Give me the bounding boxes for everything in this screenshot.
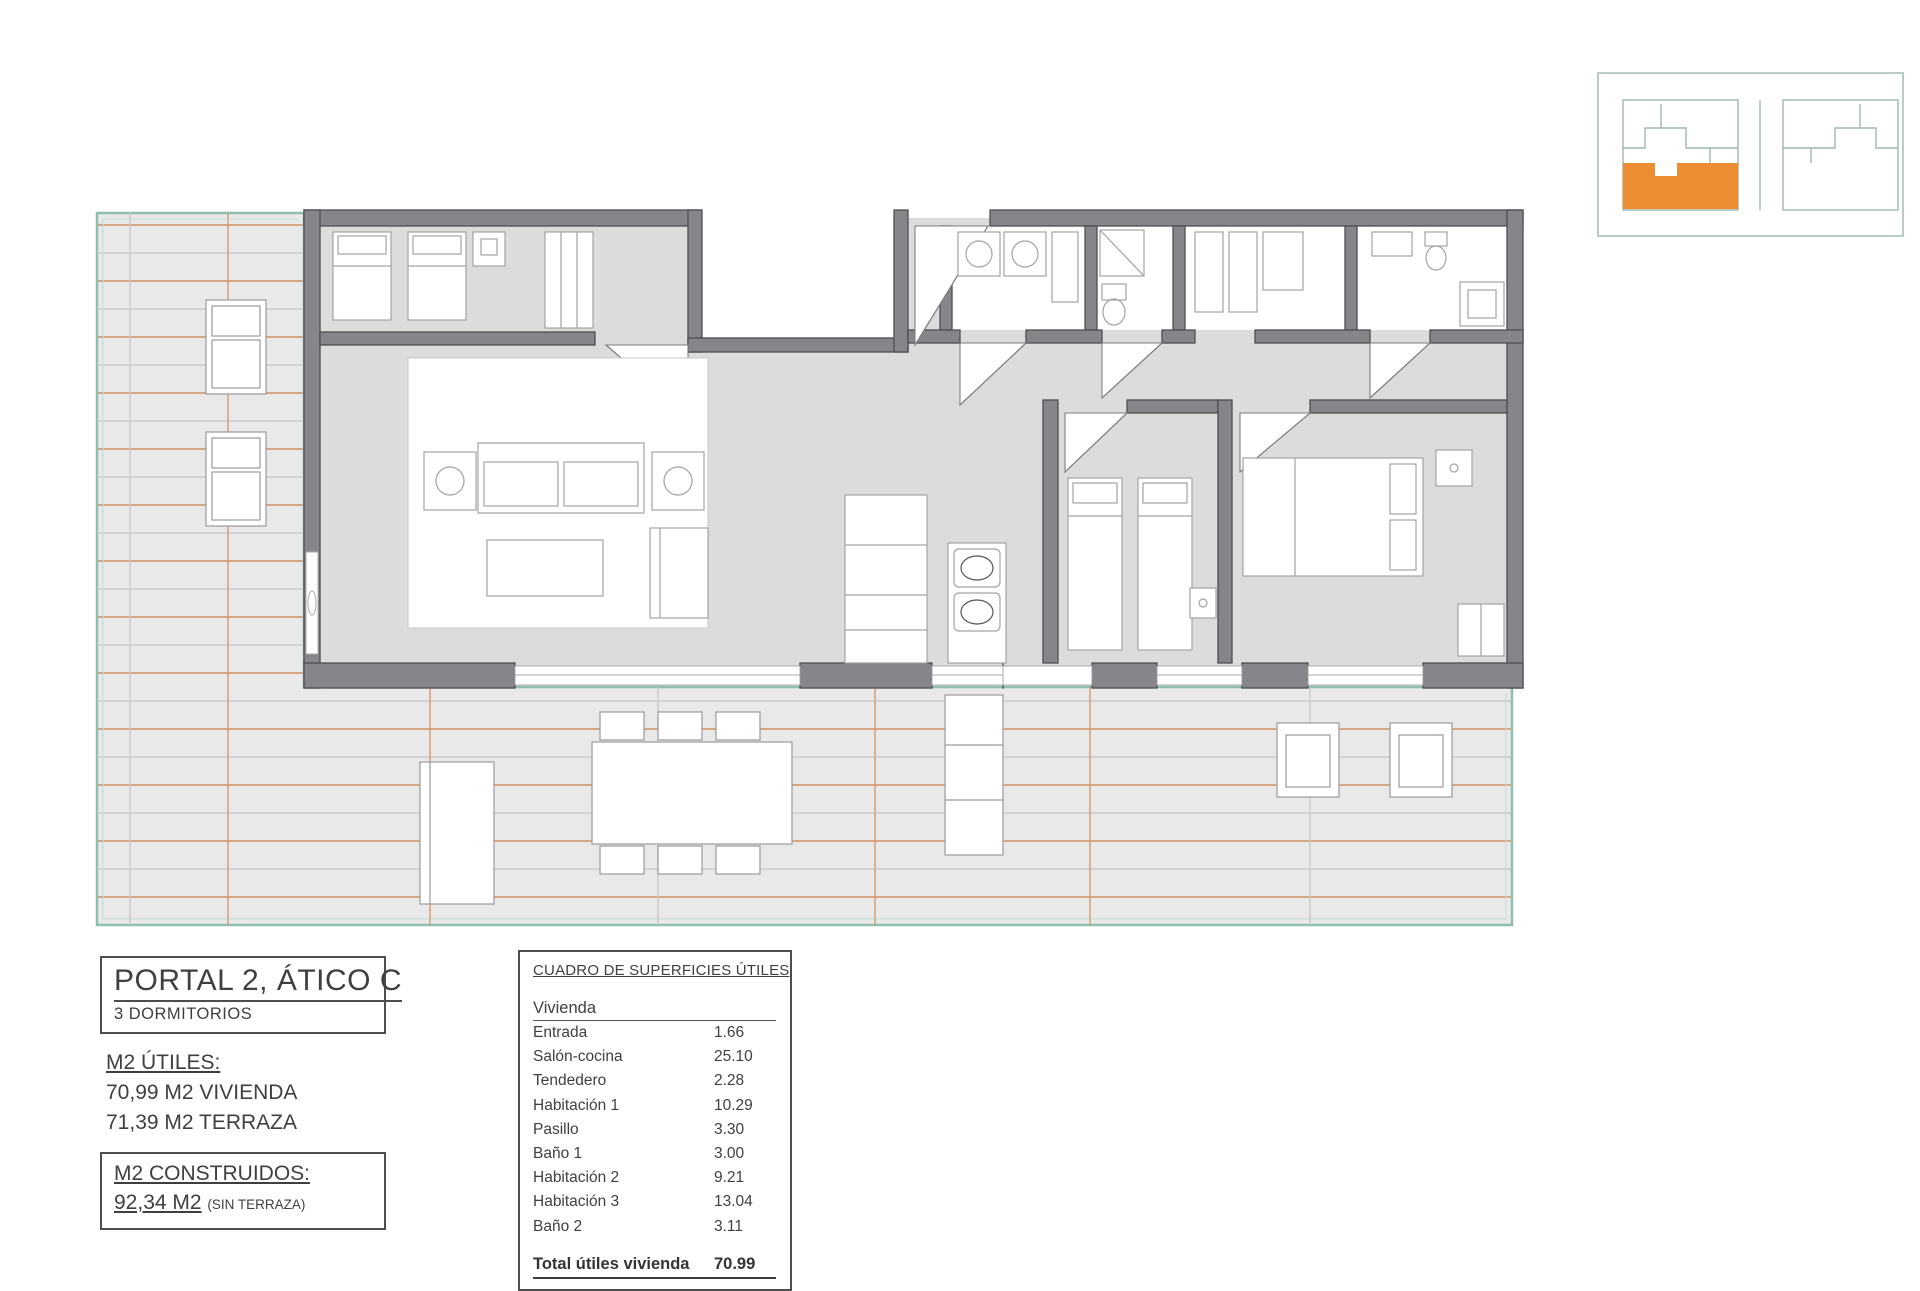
- single-bed-icon: [333, 232, 391, 320]
- page-subtitle: 3 DORMITORIOS: [114, 1005, 374, 1024]
- title-block: PORTAL 2, ÁTICO C 3 DORMITORIOS: [100, 956, 386, 1034]
- outdoor-counter-icon: [945, 695, 1003, 855]
- m2-utiles-vivienda: 70,99 M2 VIVIENDA: [106, 1078, 297, 1108]
- apartment: [304, 210, 1523, 688]
- total-value: 70.99: [714, 1255, 776, 1274]
- outdoor-armchair-icon: [1390, 723, 1452, 797]
- room-label: Tendedero: [533, 1069, 714, 1093]
- m2-construidos-note: (SIN TERRAZA): [207, 1197, 305, 1212]
- table-row: Baño 2 3.11: [533, 1215, 776, 1239]
- single-bed-icon: [1138, 478, 1192, 650]
- nightstand-icon: [1436, 450, 1472, 486]
- double-bed-icon: [1243, 458, 1423, 576]
- outdoor-armchair-icon: [1277, 723, 1339, 797]
- m2-utiles-block: M2 ÚTILES: 70,99 M2 VIVIENDA 71,39 M2 TE…: [106, 1048, 297, 1138]
- room-area-value: 9.21: [714, 1166, 776, 1190]
- surfaces-table: CUADRO DE SUPERFICIES ÚTILES Vivienda En…: [518, 950, 792, 1291]
- room-area-value: 10.29: [714, 1094, 776, 1118]
- room-area-value: 3.30: [714, 1118, 776, 1142]
- highlighted-unit: [1623, 163, 1738, 209]
- room-label: Habitación 1: [533, 1094, 714, 1118]
- room-area-value: 3.11: [714, 1215, 776, 1239]
- shelf-icon: [1052, 232, 1078, 302]
- total-label: Total útiles vivienda: [533, 1255, 714, 1274]
- side-table-icon: [652, 452, 704, 510]
- shower-icon: [1100, 230, 1144, 276]
- sun-lounger-icon: [206, 300, 266, 394]
- room-label: Baño 2: [533, 1215, 714, 1239]
- table-row: Habitación 1 10.29: [533, 1094, 776, 1118]
- room-label: Pasillo: [533, 1118, 714, 1142]
- room-label: Habitación 3: [533, 1190, 714, 1214]
- unit-locator: [1598, 73, 1903, 236]
- side-table-icon: [424, 452, 476, 510]
- shower-icon: [1460, 282, 1504, 326]
- table-row: Habitación 3 13.04: [533, 1190, 776, 1214]
- m2-construidos-block: M2 CONSTRUIDOS: 92,34 M2 (SIN TERRAZA): [100, 1152, 386, 1230]
- kitchen-sink-icon: [948, 543, 1006, 663]
- surfaces-table-title: CUADRO DE SUPERFICIES ÚTILES: [533, 962, 776, 979]
- page-title: PORTAL 2, ÁTICO C: [114, 964, 402, 1002]
- room-area-value: 1.66: [714, 1021, 776, 1045]
- table-row: Baño 1 3.00: [533, 1142, 776, 1166]
- surfaces-table-rows: Entrada 1.66 Salón-cocina 25.10 Tendeder…: [533, 1021, 776, 1239]
- room-area-value: 3.00: [714, 1142, 776, 1166]
- nightstand-icon: [1190, 588, 1216, 618]
- room-label: Salón-cocina: [533, 1045, 714, 1069]
- nightstand-icon: [473, 232, 505, 266]
- room-area-value: 13.04: [714, 1190, 776, 1214]
- bench-icon: [420, 762, 494, 904]
- m2-construidos-value: 92,34 M2: [114, 1191, 202, 1214]
- floor-plan-page: { "plan": { "title": "PORTAL 2, ÁTICO C"…: [0, 0, 1920, 1280]
- m2-construidos-heading: M2 CONSTRUIDOS:: [114, 1159, 374, 1188]
- coffee-table-icon: [487, 540, 603, 596]
- sofa-icon: [478, 443, 644, 513]
- wardrobe-icon: [545, 232, 593, 328]
- table-row: Tendedero 2.28: [533, 1069, 776, 1093]
- dryer-icon: [1004, 232, 1046, 276]
- table-row: Habitación 2 9.21: [533, 1166, 776, 1190]
- surfaces-table-section: Vivienda: [533, 999, 776, 1021]
- room-area-value: 25.10: [714, 1045, 776, 1069]
- kitchen-counter-icon: [845, 495, 927, 663]
- room-area-value: 2.28: [714, 1069, 776, 1093]
- surfaces-table-total: Total útiles vivienda 70.99: [533, 1255, 776, 1279]
- single-bed-icon: [408, 232, 466, 320]
- room-label: Habitación 2: [533, 1166, 714, 1190]
- room-label: Entrada: [533, 1021, 714, 1045]
- tv-sideboard-icon: [650, 528, 708, 618]
- washer-icon: [958, 232, 1000, 276]
- sun-lounger-icon: [206, 432, 266, 526]
- table-row: Salón-cocina 25.10: [533, 1045, 776, 1069]
- room-label: Baño 1: [533, 1142, 714, 1166]
- single-bed-icon: [1068, 478, 1122, 650]
- wardrobe-icon: [1458, 604, 1504, 656]
- sink-icon: [1372, 232, 1412, 256]
- m2-utiles-heading: M2 ÚTILES:: [106, 1048, 297, 1078]
- m2-utiles-terraza: 71,39 M2 TERRAZA: [106, 1108, 297, 1138]
- table-row: Entrada 1.66: [533, 1021, 776, 1045]
- table-row: Pasillo 3.30: [533, 1118, 776, 1142]
